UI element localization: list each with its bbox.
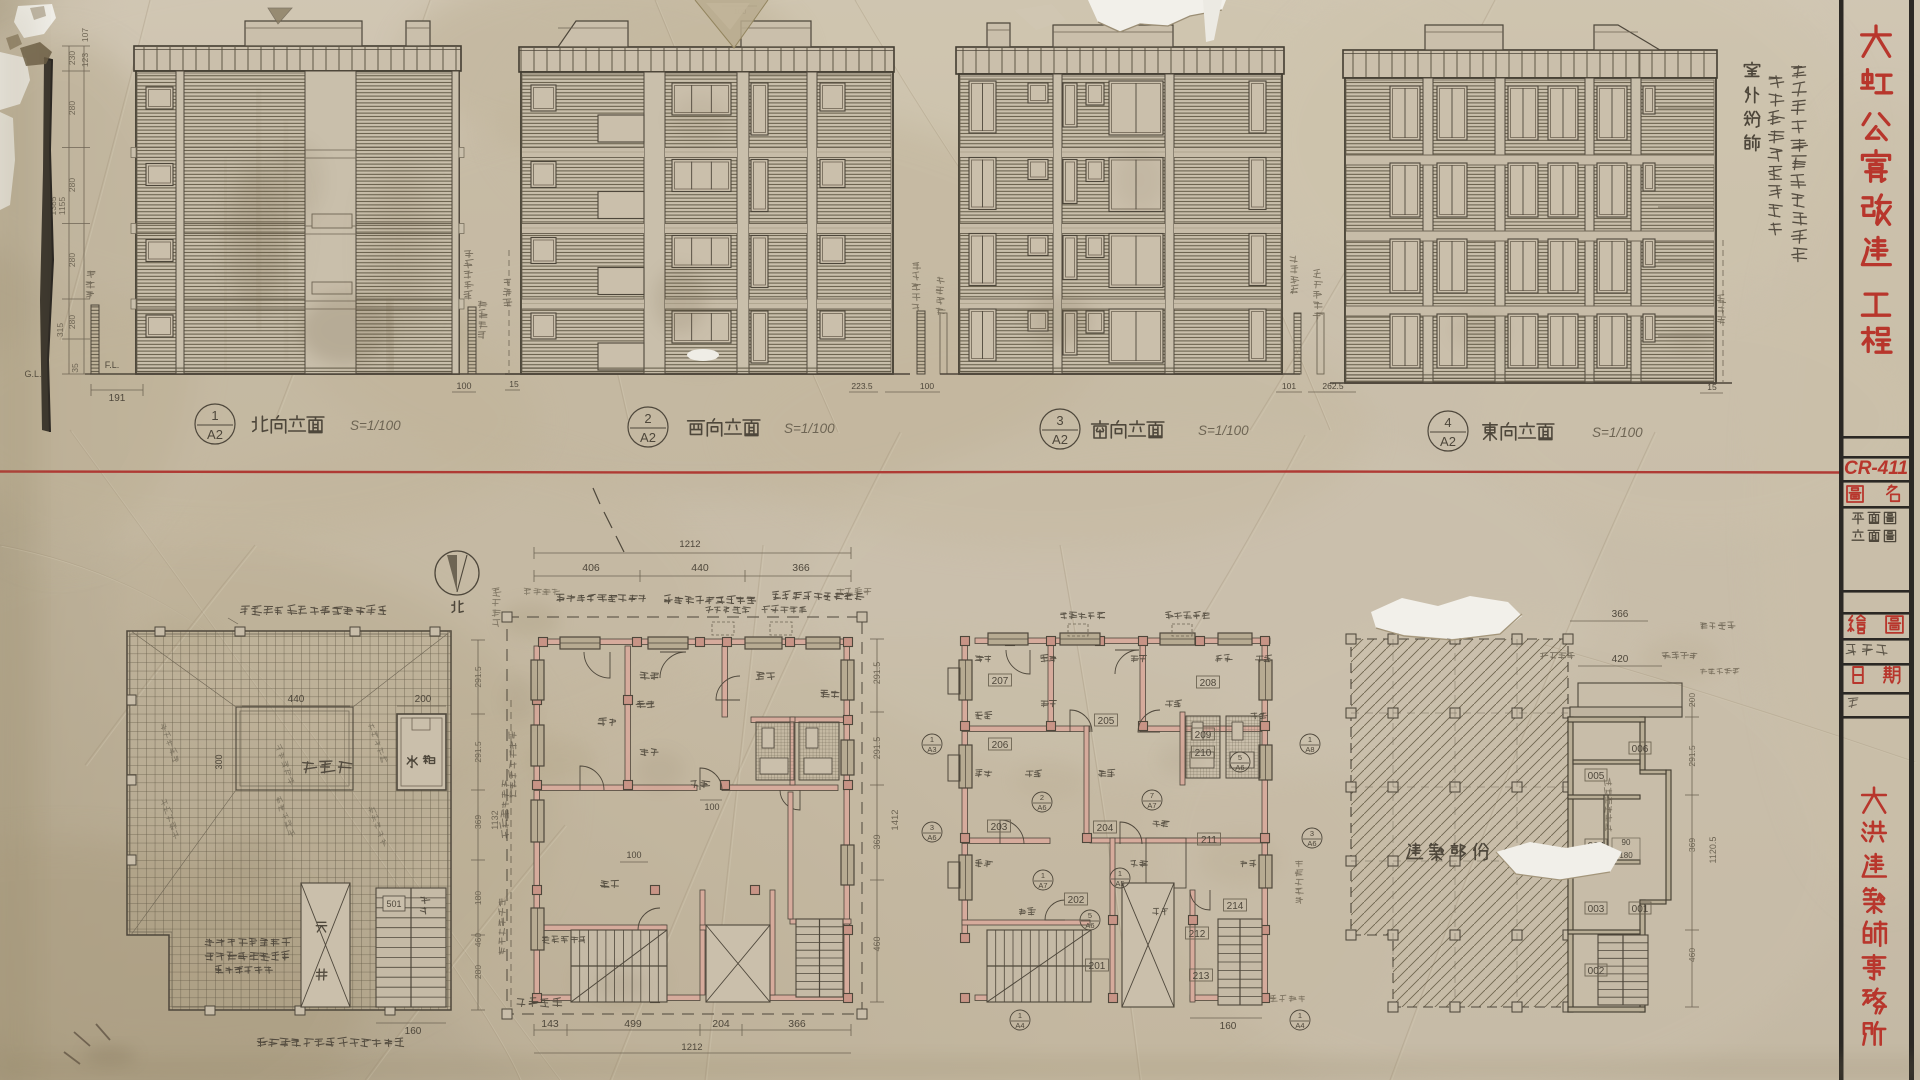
svg-text:160: 160 (405, 1026, 422, 1037)
svg-text:440: 440 (691, 562, 709, 574)
svg-text:3: 3 (1310, 829, 1314, 838)
svg-text:207: 207 (992, 676, 1009, 687)
svg-text:005: 005 (1588, 771, 1605, 782)
svg-text:291.5: 291.5 (872, 662, 882, 685)
svg-text:A4: A4 (1015, 1021, 1024, 1030)
svg-text:212: 212 (1189, 929, 1206, 940)
svg-text:191: 191 (109, 393, 126, 404)
svg-text:211: 211 (1201, 835, 1217, 846)
svg-text:501: 501 (386, 899, 401, 909)
svg-text:208: 208 (1200, 678, 1217, 689)
svg-text:A6: A6 (1037, 803, 1046, 812)
svg-text:202: 202 (1068, 895, 1085, 906)
svg-text:223.5: 223.5 (851, 381, 873, 391)
svg-text:101: 101 (1282, 381, 1296, 391)
svg-text:209: 209 (1195, 730, 1212, 741)
svg-text:291.5: 291.5 (473, 666, 483, 688)
svg-text:1: 1 (1308, 735, 1312, 744)
svg-text:420: 420 (1612, 654, 1629, 665)
svg-text:90: 90 (1622, 838, 1631, 847)
svg-text:1212: 1212 (679, 539, 700, 550)
svg-text:A2: A2 (207, 427, 223, 442)
svg-text:100: 100 (456, 381, 471, 391)
svg-text:S=1/100: S=1/100 (1198, 423, 1249, 438)
svg-text:291.5: 291.5 (473, 741, 483, 763)
svg-text:S=1/100: S=1/100 (350, 418, 401, 433)
svg-text:5: 5 (1088, 911, 1092, 920)
svg-text:300: 300 (214, 754, 224, 769)
svg-text:S=1/100: S=1/100 (784, 421, 835, 436)
svg-text:213: 213 (1193, 971, 1210, 982)
svg-text:1: 1 (1041, 871, 1045, 880)
svg-text:A3: A3 (927, 745, 936, 754)
svg-text:1155: 1155 (57, 197, 67, 216)
svg-text:1: 1 (1018, 1011, 1022, 1020)
svg-text:1132: 1132 (490, 810, 500, 829)
svg-text:1: 1 (1118, 869, 1122, 878)
svg-text:A8: A8 (1305, 745, 1314, 754)
svg-text:280: 280 (67, 101, 77, 115)
svg-text:35: 35 (70, 363, 80, 373)
svg-text:A2: A2 (640, 430, 656, 445)
svg-text:1: 1 (1298, 1011, 1302, 1020)
svg-text:366: 366 (792, 562, 810, 574)
svg-text:315: 315 (55, 323, 65, 337)
svg-text:280: 280 (67, 315, 77, 329)
svg-text:S=1/100: S=1/100 (1592, 425, 1643, 440)
svg-text:204: 204 (1097, 823, 1114, 834)
svg-text:A7: A7 (1147, 801, 1156, 810)
svg-text:5: 5 (1238, 753, 1242, 762)
svg-text:406: 406 (582, 562, 600, 574)
svg-text:1412: 1412 (890, 809, 901, 830)
svg-text:3: 3 (930, 823, 934, 832)
svg-text:369: 369 (473, 815, 483, 829)
svg-text:280: 280 (67, 178, 77, 192)
svg-text:1212: 1212 (681, 1042, 702, 1053)
svg-text:460: 460 (872, 936, 882, 951)
svg-text:369: 369 (872, 834, 882, 849)
svg-text:200: 200 (415, 694, 432, 705)
svg-text:F.L.: F.L. (105, 360, 120, 370)
svg-text:A6: A6 (1085, 921, 1094, 930)
svg-text:1: 1 (211, 408, 218, 423)
svg-text:366: 366 (788, 1018, 806, 1030)
svg-text:200: 200 (1687, 693, 1697, 707)
svg-text:230: 230 (67, 51, 77, 65)
svg-text:A6: A6 (1307, 839, 1316, 848)
svg-text:203: 203 (991, 822, 1008, 833)
svg-text:280: 280 (67, 253, 77, 267)
svg-text:440: 440 (288, 694, 305, 705)
svg-text:123: 123 (80, 53, 90, 67)
svg-text:A2: A2 (1052, 432, 1068, 447)
svg-text:003: 003 (1588, 904, 1605, 915)
svg-text:291.5: 291.5 (872, 737, 882, 760)
svg-text:291.5: 291.5 (1687, 745, 1697, 767)
svg-text:1: 1 (930, 735, 934, 744)
svg-text:369: 369 (1687, 838, 1697, 852)
svg-text:499: 499 (624, 1018, 642, 1030)
svg-text:205: 205 (1098, 716, 1115, 727)
svg-text:100: 100 (626, 850, 641, 860)
svg-text:460: 460 (473, 933, 483, 947)
svg-text:A4: A4 (1295, 1021, 1304, 1030)
svg-text:001: 001 (1632, 904, 1649, 915)
svg-text:4: 4 (1444, 415, 1451, 430)
svg-text:214: 214 (1227, 901, 1244, 912)
svg-text:201: 201 (1089, 961, 1106, 972)
svg-text:180: 180 (473, 891, 483, 905)
svg-text:204: 204 (712, 1018, 730, 1030)
svg-text:460: 460 (1687, 948, 1697, 962)
svg-text:A5: A5 (1115, 879, 1124, 888)
svg-text:A6: A6 (1235, 763, 1244, 772)
svg-text:107: 107 (80, 28, 90, 42)
svg-text:160: 160 (1220, 1021, 1237, 1032)
svg-text:100: 100 (704, 802, 719, 812)
svg-text:CR-411: CR-411 (1844, 458, 1908, 479)
svg-text:15: 15 (1707, 382, 1717, 392)
svg-text:206: 206 (992, 740, 1009, 751)
svg-text:100: 100 (920, 381, 934, 391)
svg-text:A2: A2 (1440, 434, 1456, 449)
svg-text:2: 2 (1040, 793, 1044, 802)
svg-text:143: 143 (541, 1018, 559, 1030)
svg-text:7: 7 (1150, 791, 1154, 800)
svg-text:A7: A7 (1038, 881, 1047, 890)
svg-text:3: 3 (1056, 413, 1063, 428)
svg-text:280: 280 (473, 965, 483, 979)
svg-text:15: 15 (509, 379, 519, 389)
svg-text:A6: A6 (927, 833, 936, 842)
svg-text:1120.5: 1120.5 (1708, 837, 1718, 864)
svg-text:002: 002 (1588, 966, 1605, 977)
svg-text:366: 366 (1612, 609, 1629, 620)
svg-text:006: 006 (1632, 744, 1649, 755)
svg-text:2: 2 (644, 411, 651, 426)
